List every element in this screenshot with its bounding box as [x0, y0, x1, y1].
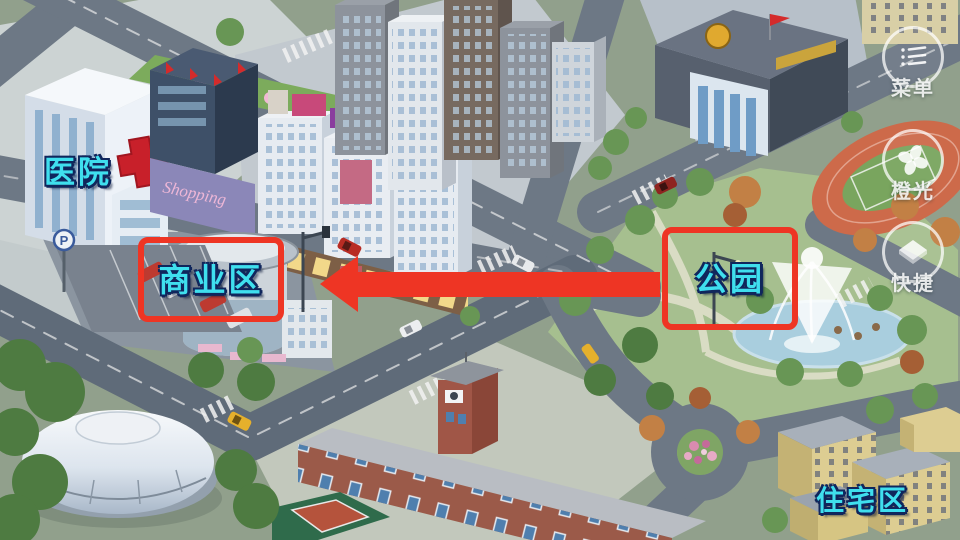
- menu-list-icon: [898, 44, 928, 70]
- menu-button-label: 菜单: [880, 72, 946, 101]
- shortcut-button-label: 快捷: [880, 267, 946, 296]
- chengguang-button-label: 橙光: [880, 175, 946, 204]
- gold-emblem-icon: [706, 24, 730, 48]
- flower-icon: [897, 144, 929, 176]
- diamond-icon: [897, 239, 929, 265]
- highlight-box-commercial[interactable]: 商业区: [138, 237, 284, 322]
- label-residential: 住宅区: [816, 487, 909, 515]
- roundabout-garden: [677, 429, 723, 475]
- label-hospital: 医院: [44, 157, 112, 188]
- menu-button[interactable]: 菜单: [880, 26, 946, 101]
- game-map-screen: Shopping: [0, 0, 960, 540]
- label-commercial: 商业区: [158, 264, 263, 296]
- flag-building: [150, 48, 258, 174]
- chengguang-button[interactable]: 橙光: [880, 129, 946, 204]
- label-park: 公园: [695, 263, 765, 295]
- highlight-box-park[interactable]: 公园: [662, 227, 798, 330]
- svg-text:P: P: [60, 233, 69, 248]
- shortcut-button[interactable]: 快捷: [880, 221, 946, 296]
